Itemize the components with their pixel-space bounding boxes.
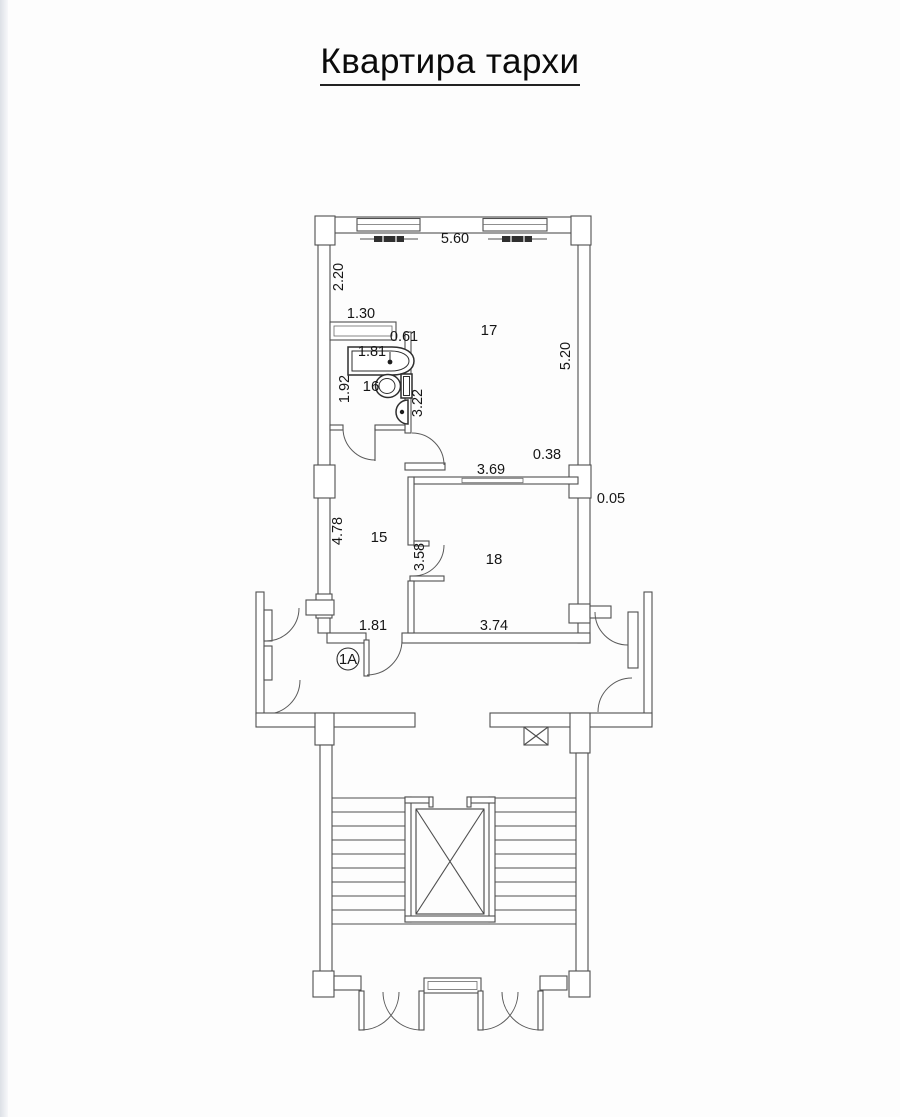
- room-label-16: 16: [363, 378, 380, 395]
- radiator: [360, 236, 418, 242]
- dim-shelf-width: 1.30: [347, 306, 375, 322]
- sink: [396, 400, 408, 424]
- pier: [570, 713, 590, 753]
- vent-shaft: [524, 727, 548, 745]
- dim-left-upper: 2.20: [331, 263, 347, 291]
- elevator-cabin: [416, 809, 484, 914]
- elevator-shaft: [405, 797, 495, 922]
- dim-tub-length: 1.81: [358, 344, 386, 360]
- landing-left-wall: [256, 592, 264, 714]
- stairs-right: [495, 798, 576, 910]
- pier: [313, 971, 334, 997]
- pier: [315, 216, 335, 245]
- pier: [590, 606, 611, 618]
- bathroom-door: [343, 428, 375, 461]
- bathroom-shelf-wall: [330, 322, 396, 340]
- dim-hall-partition: 3.58: [412, 543, 428, 571]
- room-label-17: 17: [481, 322, 498, 339]
- building-entrance: [313, 971, 590, 1030]
- window: [483, 219, 547, 232]
- dim-wall-offset: 0.05: [597, 491, 625, 507]
- dim-bath-right-wall: 3.22: [410, 389, 426, 417]
- dim-room18-width: 3.74: [480, 618, 508, 634]
- radiator: [488, 236, 547, 242]
- dim-niche-offset: 0.38: [533, 447, 561, 463]
- neighbor-door: [595, 612, 638, 712]
- stairs-left: [332, 798, 405, 910]
- dim-entry-width: 1.81: [359, 618, 387, 634]
- pier: [569, 604, 590, 623]
- neighbor-door: [264, 608, 299, 641]
- window: [357, 219, 420, 232]
- toilet: [376, 374, 413, 398]
- wall-stub: [405, 463, 445, 470]
- apartment-walls: [306, 216, 611, 643]
- partition-wall-17-18: [414, 477, 578, 484]
- dim-right-side: 5.20: [558, 342, 574, 370]
- dim-hall-left: 4.78: [330, 517, 346, 545]
- stairwell: [320, 745, 588, 978]
- pier: [571, 216, 591, 245]
- entrance-center-stub: [424, 978, 481, 993]
- pier: [306, 600, 334, 615]
- entrance-doors: [359, 991, 543, 1030]
- neighbor-door: [264, 646, 300, 714]
- living-room-door: [412, 433, 444, 465]
- unit-label: 1A: [339, 651, 357, 668]
- floor-plan: 1A: [0, 0, 900, 1117]
- room-label-18: 18: [486, 551, 503, 568]
- room-label-15: 15: [371, 529, 388, 546]
- pier: [314, 465, 335, 498]
- dim-shelf-gap: 0.61: [390, 329, 418, 345]
- dim-bath-left: 1.92: [337, 375, 353, 403]
- unit-badge: 1A: [337, 648, 359, 670]
- dim-partition-length: 3.69: [477, 462, 505, 478]
- pier: [569, 971, 590, 997]
- pier: [315, 713, 334, 745]
- entry-door: [364, 640, 402, 676]
- dim-top-width: 5.60: [441, 231, 469, 247]
- landing-right-wall: [644, 592, 652, 724]
